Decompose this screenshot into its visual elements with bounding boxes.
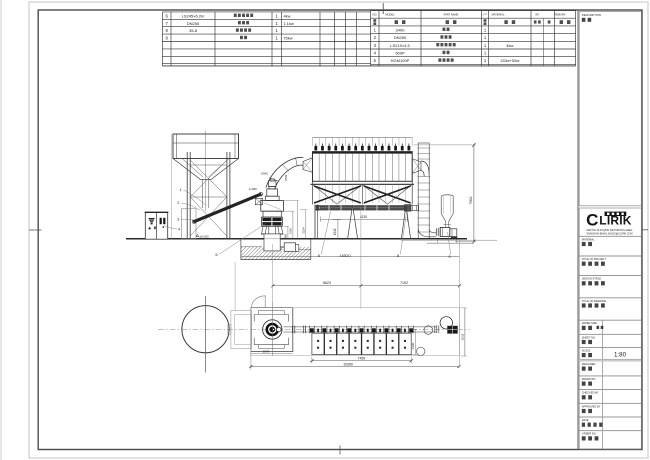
svg-text:LS219×4.5: LS219×4.5 — [390, 43, 410, 48]
svg-text:3: 3 — [374, 43, 377, 48]
svg-text:2234: 2234 — [301, 227, 305, 234]
svg-text:132kw+30kw: 132kw+30kw — [500, 59, 520, 63]
svg-text:4: 4 — [374, 51, 377, 56]
svg-text:1: 1 — [276, 13, 279, 18]
svg-text:16520: 16520 — [339, 253, 351, 258]
svg-text:9: 9 — [166, 36, 169, 41]
svg-text:DATE: DATE — [582, 418, 589, 422]
svg-text:2: 2 — [374, 35, 377, 40]
svg-text:1: 1 — [484, 35, 487, 40]
svg-text:2875: 2875 — [263, 350, 270, 354]
svg-text:1: 1 — [484, 58, 487, 63]
svg-text:3: 3 — [177, 218, 179, 222]
svg-text:SHANGHAI EMAIL:SALES@CLIRIK.CO: SHANGHAI EMAIL:SALES@CLIRIK.COM — [587, 233, 633, 236]
svg-text:DESCRIPTION: DESCRIPTION — [582, 13, 601, 17]
svg-text:K540: K540 — [261, 172, 268, 176]
svg-text:DRAWN BY: DRAWN BY — [582, 377, 596, 381]
svg-text:8: 8 — [166, 28, 169, 33]
svg-text:1342: 1342 — [333, 228, 337, 235]
svg-text:4kw: 4kw — [506, 43, 513, 48]
svg-text:2: 2 — [177, 201, 179, 205]
svg-text:QTY: QTY — [483, 14, 488, 16]
svg-text:MATERIAL: MATERIAL — [492, 13, 505, 17]
svg-text:8: 8 — [397, 253, 400, 258]
svg-text:MODEL: MODEL — [385, 13, 395, 17]
svg-text:A-380: A-380 — [249, 187, 257, 191]
svg-text:SCALE: SCALE — [582, 348, 591, 352]
svg-text:4kw: 4kw — [283, 13, 290, 18]
svg-text:NO.: NO. — [372, 13, 377, 17]
svg-text:7: 7 — [166, 21, 169, 26]
svg-text:PAPER SIZE: PAPER SIZE — [582, 321, 597, 325]
svg-text:35-8: 35-8 — [189, 28, 198, 33]
svg-text:LS245×6.2m: LS245×6.2m — [182, 13, 205, 18]
svg-text:860: 860 — [285, 233, 288, 238]
svg-text:1920: 1920 — [289, 228, 293, 234]
svg-text:7152: 7152 — [400, 281, 408, 285]
svg-text:DN250: DN250 — [394, 35, 407, 40]
svg-text:TITLE OF PROJECT: TITLE OF PROJECT — [582, 257, 607, 261]
svg-text:500P: 500P — [395, 51, 405, 56]
svg-text:75kw: 75kw — [283, 36, 292, 41]
svg-text:15369: 15369 — [343, 362, 353, 366]
svg-text:1: 1 — [484, 43, 487, 48]
svg-text:4: 4 — [178, 227, 180, 231]
svg-text:1: 1 — [276, 36, 279, 41]
svg-text:REMARK: REMARK — [554, 13, 565, 17]
svg-text:7562: 7562 — [469, 197, 473, 205]
svg-text:ORDER NO.: ORDER NO. — [582, 432, 597, 436]
svg-text:MATERIAL: MATERIAL — [582, 237, 595, 241]
svg-text:1: 1 — [484, 27, 487, 32]
svg-text:C: C — [586, 210, 598, 229]
svg-text:±0.000: ±0.000 — [199, 234, 208, 238]
svg-text:DESIGNER: DESIGNER — [582, 362, 596, 366]
svg-text:SHEET NO.: SHEET NO. — [582, 335, 596, 339]
svg-text:CHECKED BY: CHECKED BY — [582, 391, 599, 395]
svg-text:DESIGN STAGE: DESIGN STAGE — [582, 277, 602, 281]
svg-text:1: 1 — [484, 51, 487, 56]
svg-text:2300: 2300 — [411, 342, 415, 349]
svg-text:1: 1 — [276, 21, 279, 26]
svg-text:6: 6 — [318, 253, 321, 258]
svg-text:APPROVED BY: APPROVED BY — [582, 404, 601, 408]
svg-text:1.1kw: 1.1kw — [283, 21, 294, 26]
svg-text:1: 1 — [374, 27, 377, 32]
svg-text:TITLE OF DRAWING: TITLE OF DRAWING — [582, 299, 607, 303]
svg-text:7459: 7459 — [358, 357, 366, 361]
svg-text:6: 6 — [166, 13, 169, 18]
svg-text:∅500: ∅500 — [285, 174, 288, 181]
svg-text:9: 9 — [448, 254, 451, 259]
svg-text:6623: 6623 — [323, 281, 331, 285]
svg-text:1: 1 — [179, 188, 181, 192]
svg-text:3532: 3532 — [460, 333, 464, 340]
svg-text:DN250: DN250 — [187, 21, 200, 26]
svg-text:HGM100P: HGM100P — [391, 58, 410, 63]
svg-text:5: 5 — [374, 58, 377, 63]
svg-text:3400: 3400 — [396, 27, 406, 32]
svg-text:5: 5 — [215, 252, 218, 257]
svg-text:1:80: 1:80 — [614, 352, 627, 359]
svg-text:PART NAME: PART NAME — [444, 13, 459, 17]
svg-text:WT.: WT. — [535, 13, 540, 17]
svg-text:1: 1 — [276, 28, 279, 33]
